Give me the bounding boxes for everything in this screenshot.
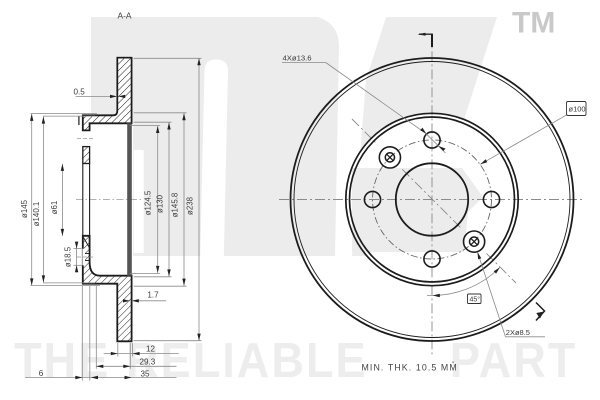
svg-text:ø145.8: ø145.8 [171,192,180,217]
svg-text:ø100: ø100 [569,105,586,114]
svg-text:6: 6 [39,369,44,378]
svg-text:45°: 45° [470,296,481,304]
svg-text:ø61: ø61 [50,201,59,215]
svg-text:ø130: ø130 [155,194,164,213]
svg-text:35: 35 [141,370,151,379]
svg-text:MIN. THK. 10.5 MM: MIN. THK. 10.5 MM [362,363,458,373]
svg-text:ø124.5: ø124.5 [143,190,152,215]
svg-text:12: 12 [146,345,156,354]
svg-text:4Xø13.6: 4Xø13.6 [283,54,312,63]
svg-text:ø18.5: ø18.5 [63,246,72,267]
svg-text:PART: PART [450,332,577,387]
svg-text:ø140.1: ø140.1 [32,202,41,227]
svg-text:ø238: ø238 [186,196,195,215]
svg-text:29.3: 29.3 [140,357,156,366]
svg-text:ø145: ø145 [20,199,29,218]
svg-text:A-A: A-A [118,10,132,20]
svg-text:2Xø8.5: 2Xø8.5 [506,328,530,337]
svg-text:0.5: 0.5 [74,87,86,96]
svg-text:1.7: 1.7 [147,290,159,299]
svg-text:THE: THE [14,332,110,387]
svg-text:TM: TM [512,7,555,40]
